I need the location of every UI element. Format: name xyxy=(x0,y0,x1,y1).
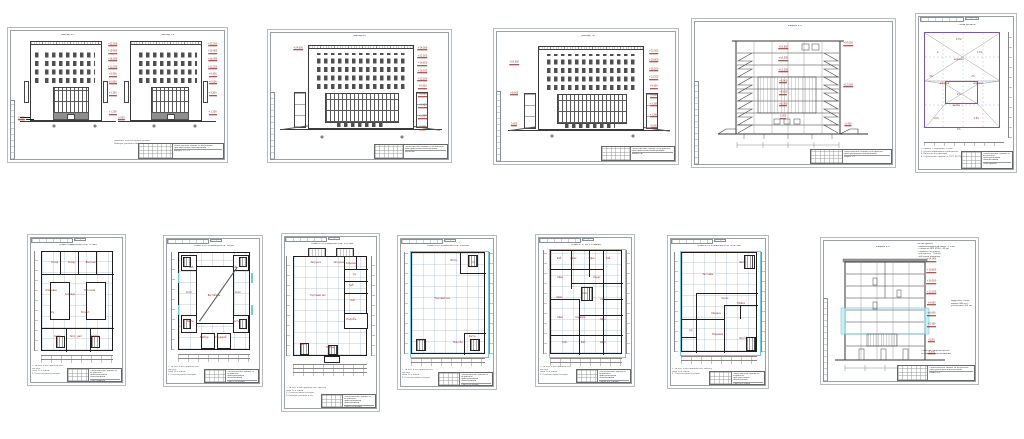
sheet-name: Фасад А-Г xyxy=(405,151,446,154)
level-mark: +19.800 xyxy=(418,62,428,66)
ground-line xyxy=(508,130,670,131)
floor-plan: СкладСкладВенткам.КладоваяКоридорНасосна… xyxy=(41,251,113,351)
level-mark: +16.500 xyxy=(418,70,428,74)
title-block-grid xyxy=(205,370,226,382)
sheet-plan-basement[interactable]: План подвала на отм. -3.300 СкладСкладВе… xyxy=(27,234,126,386)
room-label: Кухня xyxy=(721,298,728,300)
stair-core xyxy=(239,257,247,267)
entrance-door xyxy=(167,114,175,120)
level-mark: +19.800 xyxy=(208,51,218,55)
room-label: Офис xyxy=(556,297,562,299)
level-mark: +6.600 xyxy=(209,81,217,85)
wall xyxy=(551,299,579,300)
title-block-text: Общественное здание со встроенно- пристр… xyxy=(732,372,764,384)
room-label: Лестн. xyxy=(186,321,194,323)
frame-side-table xyxy=(496,91,501,162)
ground-line xyxy=(20,121,116,122)
axis-circle xyxy=(320,135,323,138)
project-name: Общественное здание со встроенно- пристр… xyxy=(599,371,629,381)
room-label: Каб. xyxy=(189,267,194,269)
side-wing xyxy=(294,92,306,128)
level-mark: +1.200 xyxy=(418,115,426,119)
level-mark: +13.200 xyxy=(778,69,788,73)
window-grid xyxy=(547,54,637,90)
drawing-title: Фасад А-Г xyxy=(330,35,390,38)
dimension-line xyxy=(761,252,765,352)
room-label: Зал кафе xyxy=(703,273,714,275)
entrance-tambour xyxy=(324,356,340,363)
title-block-text: Общественное здание со встроенно- пристр… xyxy=(631,147,674,160)
stair-core xyxy=(746,337,756,351)
level-mark: +24.000 xyxy=(293,47,303,51)
level-mark: +19.800 xyxy=(927,269,937,273)
title-block-grid xyxy=(375,145,404,158)
title-block: Общественное здание со встроенно- пристр… xyxy=(321,394,376,408)
room-label: 2% xyxy=(929,76,932,78)
room-label: Каб. xyxy=(557,258,562,260)
room-label: Каб. xyxy=(233,267,238,269)
building-outline xyxy=(538,46,644,130)
room-label: Лестн. xyxy=(739,338,747,340)
frame-top-table-ext xyxy=(328,237,340,240)
room-label: Кладовая xyxy=(346,263,357,265)
wall xyxy=(603,251,604,355)
room-label: Тепл. узел xyxy=(70,336,82,338)
drawing-title: План 1-го этажа на отм. 0.000 xyxy=(186,245,242,248)
room-label: Каб. xyxy=(351,300,356,302)
title-block-grid xyxy=(577,370,598,382)
window-grid xyxy=(317,53,407,89)
title-block-grid xyxy=(439,373,460,385)
title-block: Общественное здание со встроенно- пристр… xyxy=(810,149,892,164)
sheet-facade-g-a[interactable]: Фасад Г-А +22.500+19.800+16.500+13.200+9… xyxy=(493,28,679,165)
level-mark: +19.800 xyxy=(108,51,118,55)
plinth-callout: Отмостка – асфальтобетон по щебеночному … xyxy=(921,350,965,360)
room-label: С/у xyxy=(51,312,55,314)
room-label: Каб. xyxy=(563,342,568,344)
room-label: Лестн. xyxy=(450,260,458,262)
window-glazing xyxy=(178,273,180,283)
room-label: Каб. xyxy=(349,285,354,287)
room-label: воронка xyxy=(940,83,949,85)
level-mark: +9.900 xyxy=(209,73,217,77)
dimension-line xyxy=(543,250,547,354)
project-name: Общественное здание со встроенно- пристр… xyxy=(227,371,257,381)
axis-circle xyxy=(53,125,56,128)
title-block-grid xyxy=(962,152,982,168)
parapet-coping xyxy=(309,46,413,49)
title-block-text: Общественное здание со встроенно- пристр… xyxy=(404,145,447,158)
sheet-note: 1. За отм. 0.000 принята отм. чистого по… xyxy=(402,369,442,385)
building-outline xyxy=(308,45,414,129)
title-block-grid xyxy=(139,144,173,158)
title-block: Общественное здание со встроенно- пристр… xyxy=(709,371,765,385)
level-mark: +6.600 xyxy=(418,93,426,97)
title-block-grid xyxy=(322,395,343,407)
section-levels: +19.800+16.500+13.200+9.900+6.600+3.3000… xyxy=(704,29,884,155)
frame-top-table-ext xyxy=(74,238,86,241)
dimension-line xyxy=(626,250,630,354)
room-label: 2% xyxy=(971,76,974,78)
wall xyxy=(589,251,590,277)
title-block-grid xyxy=(710,372,732,384)
frame-top-table-ext xyxy=(444,239,456,242)
dimension-line xyxy=(293,372,367,376)
room-label: воронка xyxy=(954,59,963,61)
sheet-facades-1-7[interactable]: Фасад 1-7 Фасад 7-1 +22.500+19.800+16.50… xyxy=(7,27,228,163)
frame-top-table xyxy=(671,239,713,244)
level-mark: +19.800 xyxy=(778,46,788,50)
room-label: Офис xyxy=(600,342,606,344)
level-mark: 0.000 xyxy=(650,125,656,129)
room-label: Каб. xyxy=(600,299,605,301)
room-label: Мойка xyxy=(738,303,745,305)
window-glazing xyxy=(178,305,180,315)
level-mark: +24.000 xyxy=(843,42,853,46)
drawing-title: Фасад 7-1 xyxy=(128,34,208,37)
stair-core xyxy=(470,339,480,351)
level-mark: +24.000 xyxy=(418,47,428,51)
wall xyxy=(42,328,114,329)
level-mark: +16.500 xyxy=(208,58,218,62)
project-name: Общественное здание со встроенно- пристр… xyxy=(983,153,1011,163)
wall xyxy=(579,299,580,355)
curtain-wall xyxy=(325,93,399,123)
drawing-title: Разрез 2-2 xyxy=(863,246,903,249)
wall xyxy=(460,253,461,273)
room-label: 1.5% xyxy=(974,118,980,120)
level-mark: +24.000 xyxy=(927,259,937,263)
title-block: Общественное здание со встроенно- пристр… xyxy=(138,143,224,159)
sheet-name: План 1-го этажа xyxy=(227,381,257,382)
project-name: Общественное здание со встроенно- пристр… xyxy=(733,373,763,383)
room-block xyxy=(50,282,70,320)
room-label: Лестн. xyxy=(469,336,477,338)
axis-circle xyxy=(94,125,97,128)
dimension-line xyxy=(924,142,1004,146)
wall xyxy=(464,333,465,355)
drawing-title: План 2-го этажа на отм. +3.300 xyxy=(304,243,360,246)
sheet-note: 1. За отм. 0.000 принята отм. чистого по… xyxy=(672,368,714,384)
dimension-line xyxy=(171,252,175,350)
room-label: Офис xyxy=(570,258,576,260)
sheet-plan-floor-6[interactable]: План 6-го этажа на отм. +16.500 Зал кафе… xyxy=(667,235,769,389)
level-mark: +16.500 xyxy=(108,58,118,62)
side-wing xyxy=(416,92,428,128)
window-grid xyxy=(139,50,197,83)
wall xyxy=(344,257,345,313)
title-block: Общественное здание со встроенно- пристр… xyxy=(961,151,1013,169)
level-mark: -0.450 xyxy=(844,123,851,127)
sheet-name: Фасады 1-7, 7-1 xyxy=(174,150,222,153)
level-mark: +13.200 xyxy=(108,66,118,70)
wall xyxy=(42,274,114,275)
frame-side-table xyxy=(270,92,275,160)
level-mark: +9.900 xyxy=(779,80,787,84)
title-block: Общественное здание со встроенно- пристр… xyxy=(204,369,259,383)
room-label: выход xyxy=(953,105,960,107)
frame-top-table xyxy=(920,17,964,22)
axis-circle xyxy=(153,125,156,128)
axis-circle xyxy=(550,134,553,137)
dimension-line xyxy=(681,360,757,364)
ground-line xyxy=(118,121,216,122)
roof-outline xyxy=(924,32,1000,128)
room-label: Кладовая xyxy=(712,334,723,336)
window-row xyxy=(337,122,383,127)
room-block xyxy=(344,313,368,329)
room-label: Холл xyxy=(582,293,588,295)
sheet-section-1-1[interactable]: Разрез 1-1 xyxy=(691,18,896,168)
frame-top-table-ext xyxy=(582,238,594,241)
wall xyxy=(571,283,623,284)
title-block-grid xyxy=(68,369,89,381)
room-label: Офис xyxy=(557,317,563,319)
level-mark: +22.500 xyxy=(208,43,218,47)
room-label: 1.5% xyxy=(933,118,939,120)
dimension-line xyxy=(34,251,38,351)
room-label: Гардероб xyxy=(216,337,227,339)
frame-side-table xyxy=(694,81,699,165)
floor-plan: ЗагрузкаЗагрузкаТорговый залКладоваяС/уК… xyxy=(293,256,367,356)
pilaster xyxy=(124,81,129,103)
room-label: Кладовая xyxy=(46,290,57,292)
sheet-note: 1. За отм. 0.000 принята отм. чистого по… xyxy=(168,366,208,382)
title-block-grid xyxy=(898,366,928,380)
frame-top-table xyxy=(167,239,209,244)
level-mark: +16.500 xyxy=(927,280,937,284)
drawing-title: Фасад 1-7 xyxy=(28,34,108,37)
room-label: Склад xyxy=(51,262,58,264)
sheet-name: План 3-го этажа xyxy=(461,384,491,385)
room-label: Вестибюль xyxy=(208,295,221,297)
project-name: Общественное здание со встроенно- пристр… xyxy=(461,374,491,384)
title-block-text: Общественное здание со встроенно- пристр… xyxy=(460,373,492,385)
title-block-text: Общественное здание со встроенно- пристр… xyxy=(843,150,891,163)
level-mark: +16.500 xyxy=(778,57,788,61)
frame-side-table xyxy=(10,100,15,160)
loading-bay xyxy=(308,248,326,257)
wall xyxy=(460,273,486,274)
level-mark: +9.900 xyxy=(650,85,658,89)
wall xyxy=(551,269,603,270)
sheet-note: 1. За отм. 0.000 принята отм. чистого по… xyxy=(32,365,72,381)
wall-composition-callout: Наружные стены – кирпич 380 мм с утеплен… xyxy=(951,300,977,318)
frame-top-table xyxy=(285,237,327,242)
title-block: Общественное здание со встроенно- пристр… xyxy=(374,144,448,159)
level-mark: +9.900 xyxy=(109,73,117,77)
room-block xyxy=(86,282,106,320)
room-label: С/у xyxy=(353,274,357,276)
room-label: Загрузка xyxy=(310,262,320,264)
elevation-drawing: +22.500+19.800+16.500+13.200+9.900+6.600… xyxy=(24,39,110,134)
title-block-grid xyxy=(602,147,631,160)
level-mark: +1.200 xyxy=(109,111,117,115)
wall xyxy=(603,299,623,300)
floor-plan: Торговый залЛестн.С/уЛестн.Лестн.Подсобн… xyxy=(411,252,485,354)
sheet-note: 1. За отм. 0.000 принята отм. чистого по… xyxy=(540,366,580,382)
level-mark: +13.200 xyxy=(649,77,659,81)
title-block-grid xyxy=(811,150,843,163)
frame-top-table-ext xyxy=(210,239,222,242)
wall xyxy=(344,293,368,294)
frame-top-table-ext xyxy=(714,239,726,242)
level-mark: +9.900 xyxy=(418,86,426,90)
level-mark: +9.900 xyxy=(927,302,935,306)
level-mark: +19.800 xyxy=(509,61,519,65)
room-label: Загрузка xyxy=(333,262,343,264)
wall xyxy=(740,305,741,319)
wall xyxy=(464,333,486,334)
wall xyxy=(60,252,61,274)
curtain-wall xyxy=(557,94,627,124)
window-glazing xyxy=(251,273,253,283)
frame-top-table xyxy=(31,238,73,243)
level-mark: 0.000 xyxy=(511,123,517,127)
drawing-title: План 3-го этажа на отм. +6.600 xyxy=(420,245,476,248)
wall xyxy=(344,281,368,282)
room-label: Тамбур xyxy=(326,347,334,349)
room-label: С/у xyxy=(471,262,475,264)
axis-circle xyxy=(401,135,404,138)
ramp-step xyxy=(26,119,34,120)
room-label: 1.5% xyxy=(956,39,962,41)
dimension-line xyxy=(1008,32,1012,138)
wall xyxy=(724,305,758,306)
sheet-name: Разрез 1-1 xyxy=(844,156,890,159)
title-block: Общественное здание со встроенно- пристр… xyxy=(576,369,631,383)
pilaster xyxy=(24,81,29,103)
title-block-text: Общественное здание со встроенно- пристр… xyxy=(173,144,223,158)
level-mark: 0.000 xyxy=(18,117,24,121)
room-label: Коридор xyxy=(575,317,585,319)
parapet-coping xyxy=(31,42,101,45)
project-name: Общественное здание со встроенно- пристр… xyxy=(344,396,374,406)
room-label: 2% xyxy=(957,94,960,96)
level-mark: +6.600 xyxy=(650,94,658,98)
building-outline xyxy=(30,41,102,121)
title-block-text: Общественное здание со встроенно- пристр… xyxy=(598,370,630,382)
axis-circle xyxy=(194,125,197,128)
sheet-plan-floors-4-6[interactable]: План 4, 5, 6-го этажей Каб.ОфисОфисКаб.О… xyxy=(535,234,635,387)
room-label: Перег. xyxy=(593,276,601,278)
sheet-plan-floor-1[interactable]: План 1-го этажа на отм. 0.000 Каб.Каб.Хо… xyxy=(163,235,263,387)
room-label: Насосная xyxy=(84,290,95,292)
wall xyxy=(78,252,79,274)
drawing-title: Фасад Г-А xyxy=(558,35,618,38)
room-label: в xyxy=(937,52,938,54)
title-block: Общественное здание со встроенно- пристр… xyxy=(67,368,122,382)
room-label: Офис xyxy=(600,319,606,321)
room-label: 2% xyxy=(957,129,960,131)
axis-circle xyxy=(632,134,635,137)
level-mark: 0.000 xyxy=(419,126,425,130)
floor-plan: Каб.ОфисОфисКаб.ОфисПерег.ОфисХоллКаб.Оф… xyxy=(550,250,622,354)
pilaster xyxy=(103,81,108,103)
room-label: Лестн. xyxy=(417,340,425,342)
building-outline xyxy=(130,41,202,121)
dimension-line xyxy=(371,256,375,356)
floor-plan: Каб.Каб.ХоллВестибюльХоллЛестн.Лестн.Там… xyxy=(178,252,250,350)
level-mark: +13.200 xyxy=(208,66,218,70)
elevation-drawing: +22.500+19.800+16.500+13.200+9.900+6.600… xyxy=(504,41,674,151)
level-mark: 0.000 xyxy=(780,115,786,119)
level-mark: +9.900 xyxy=(510,92,518,96)
entrance-door xyxy=(67,114,75,120)
sheet-facade-a-g[interactable]: Фасад А-Г +24.000+22.500+19.800+16.500+1… xyxy=(267,29,452,163)
room-label: Тамбур xyxy=(200,337,208,339)
elevation-drawing: +24.000+22.500+19.800+16.500+13.200+9.90… xyxy=(278,40,446,150)
room-label: Лестн. xyxy=(233,321,241,323)
title-block-text: Общественное здание со встроенно- пристр… xyxy=(928,366,974,380)
room-label: Склад xyxy=(54,336,61,338)
room-label: Венткам. xyxy=(86,262,97,264)
level-mark: 0.000 xyxy=(118,117,124,121)
sheet-plan-floor-2[interactable]: План 2-го этажа на отм. +3.300 ЗагрузкаЗ… xyxy=(281,233,380,412)
sheet-roof-plan[interactable]: План кровли 1.5%в1.5%воронка2%2%воронкав… xyxy=(915,13,1017,173)
level-mark: +22.500 xyxy=(418,55,428,59)
drawing-montage-canvas: { "titleblock": { "proj": "Общественное … xyxy=(0,0,1024,439)
sheet-name: План 2-го этажа xyxy=(344,406,374,407)
curtain-wall xyxy=(151,87,189,114)
wall xyxy=(66,328,67,352)
curtain-glazing-outline xyxy=(549,249,626,358)
sheet-plan-floor-3[interactable]: План 3-го этажа на отм. +6.600 Торговый … xyxy=(397,235,497,390)
sheet-section-2-2[interactable]: Разрез 2-2 Состав кровли: – водоизоляцио… xyxy=(820,237,979,385)
sheet-name: Разрез 2-2 xyxy=(929,372,973,375)
room-label: Торговый зал xyxy=(434,298,450,300)
window-column xyxy=(35,52,40,83)
drawing-title: План подвала на отм. -3.300 xyxy=(50,244,106,247)
frame-top-table xyxy=(401,239,443,244)
wall xyxy=(579,315,623,316)
room-label: Офис xyxy=(588,258,594,260)
room-label: Тамбур xyxy=(91,336,99,338)
level-mark: +3.300 xyxy=(418,104,426,108)
level-mark: +1.200 xyxy=(209,111,217,115)
sheet-name: Планы 4-6 этажей xyxy=(599,381,629,382)
room-label: Торговый зал xyxy=(310,295,326,297)
wall xyxy=(551,335,623,336)
title-block-text: Общественное здание со встроенно- пристр… xyxy=(226,370,258,382)
room-label: Холл xyxy=(235,292,241,294)
room-label: Эл.щит. xyxy=(81,312,90,314)
frame-top-table-ext xyxy=(965,17,979,20)
drawing-title: План 6-го этажа на отм. +16.500 xyxy=(691,245,747,248)
pilaster xyxy=(203,81,208,103)
title-block: Общественное здание со встроенно- пристр… xyxy=(601,146,675,161)
title-block-text: Общественное здание со встроенно- пристр… xyxy=(343,395,375,407)
level-mark: 0.000 xyxy=(928,339,934,343)
dimension-line xyxy=(404,252,408,354)
window-row xyxy=(565,123,615,128)
sheet-note: 1. Кровля — рулонная, 2 слоя. 2. Уклоны … xyxy=(921,148,963,170)
ground-line xyxy=(280,129,442,130)
frame-top-table xyxy=(539,238,581,243)
window-grid xyxy=(45,50,95,83)
frame-side-table xyxy=(823,298,828,382)
wall xyxy=(696,293,697,353)
room-label: Каб. xyxy=(606,258,611,260)
level-mark: +13.200 xyxy=(927,291,937,295)
title-block: Общественное здание со встроенно- пристр… xyxy=(438,372,493,386)
loading-bay xyxy=(336,248,354,257)
dimension-line xyxy=(489,252,493,354)
wall xyxy=(696,293,758,294)
level-mark: +13.200 xyxy=(418,78,428,82)
wall xyxy=(682,319,724,320)
level-mark: +3.300 xyxy=(650,103,658,107)
